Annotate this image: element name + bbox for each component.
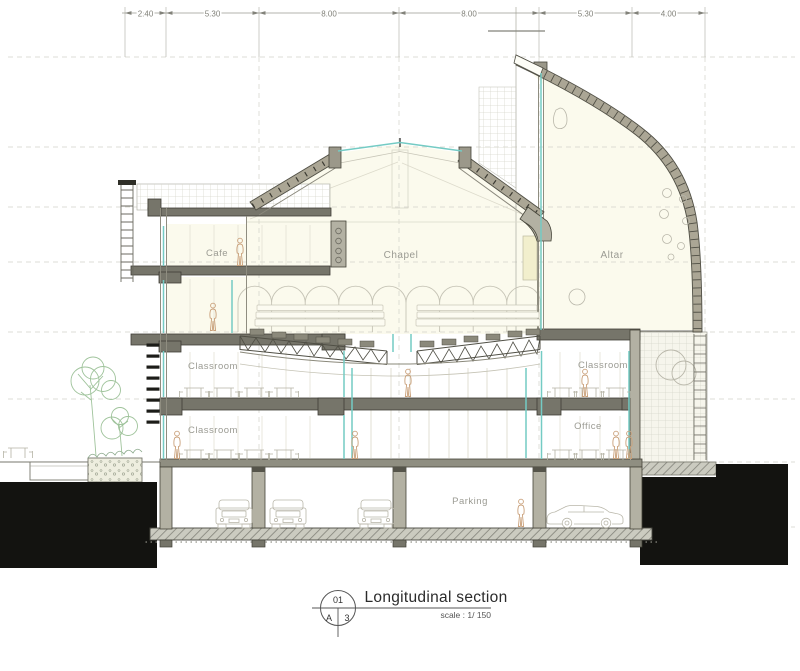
room-label-cafe: Cafe [206, 248, 228, 259]
dimension-label-6: 4.00 [661, 10, 677, 19]
room-label-classroom-upper-left: Classroom [188, 361, 238, 372]
room-label-altar: Altar [600, 250, 623, 261]
sheet-number: 3 [344, 613, 349, 623]
dimension-string: 2.40 5.30 8.00 8.00 5.30 4.00 [122, 10, 708, 19]
ground-poche-right [640, 464, 788, 565]
drawing-scale: scale : 1/ 150 [440, 610, 491, 620]
title-block: 01 A 3 Longitudinal section scale : 1/ 1… [312, 589, 508, 637]
dimension-label-2: 5.30 [205, 10, 221, 19]
longitudinal-section-drawing: Cafe Chapel Altar Classroom Classroom Cl… [0, 0, 800, 671]
dimension-label-5: 5.30 [578, 10, 594, 19]
room-label-parking: Parking [452, 496, 488, 507]
architectural-drawing-sheet: Cafe Chapel Altar Classroom Classroom Cl… [0, 0, 800, 671]
dimension-label-4: 8.00 [461, 10, 477, 19]
site-trees [71, 357, 138, 456]
parking-level [145, 459, 657, 547]
dimension-label-3: 8.00 [321, 10, 337, 19]
detail-number: 01 [333, 595, 343, 605]
room-label-office: Office [574, 421, 602, 432]
facade-louvers [147, 344, 160, 424]
sheet-letter: A [326, 613, 332, 623]
ground-poche-left [0, 482, 157, 568]
room-label-classroom-right: Classroom [578, 360, 628, 371]
room-label-chapel: Chapel [384, 250, 419, 261]
dimension-label-1: 2.40 [138, 10, 154, 19]
room-label-classroom-lower-left: Classroom [188, 425, 238, 436]
drawing-title: Longitudinal section [364, 589, 507, 606]
